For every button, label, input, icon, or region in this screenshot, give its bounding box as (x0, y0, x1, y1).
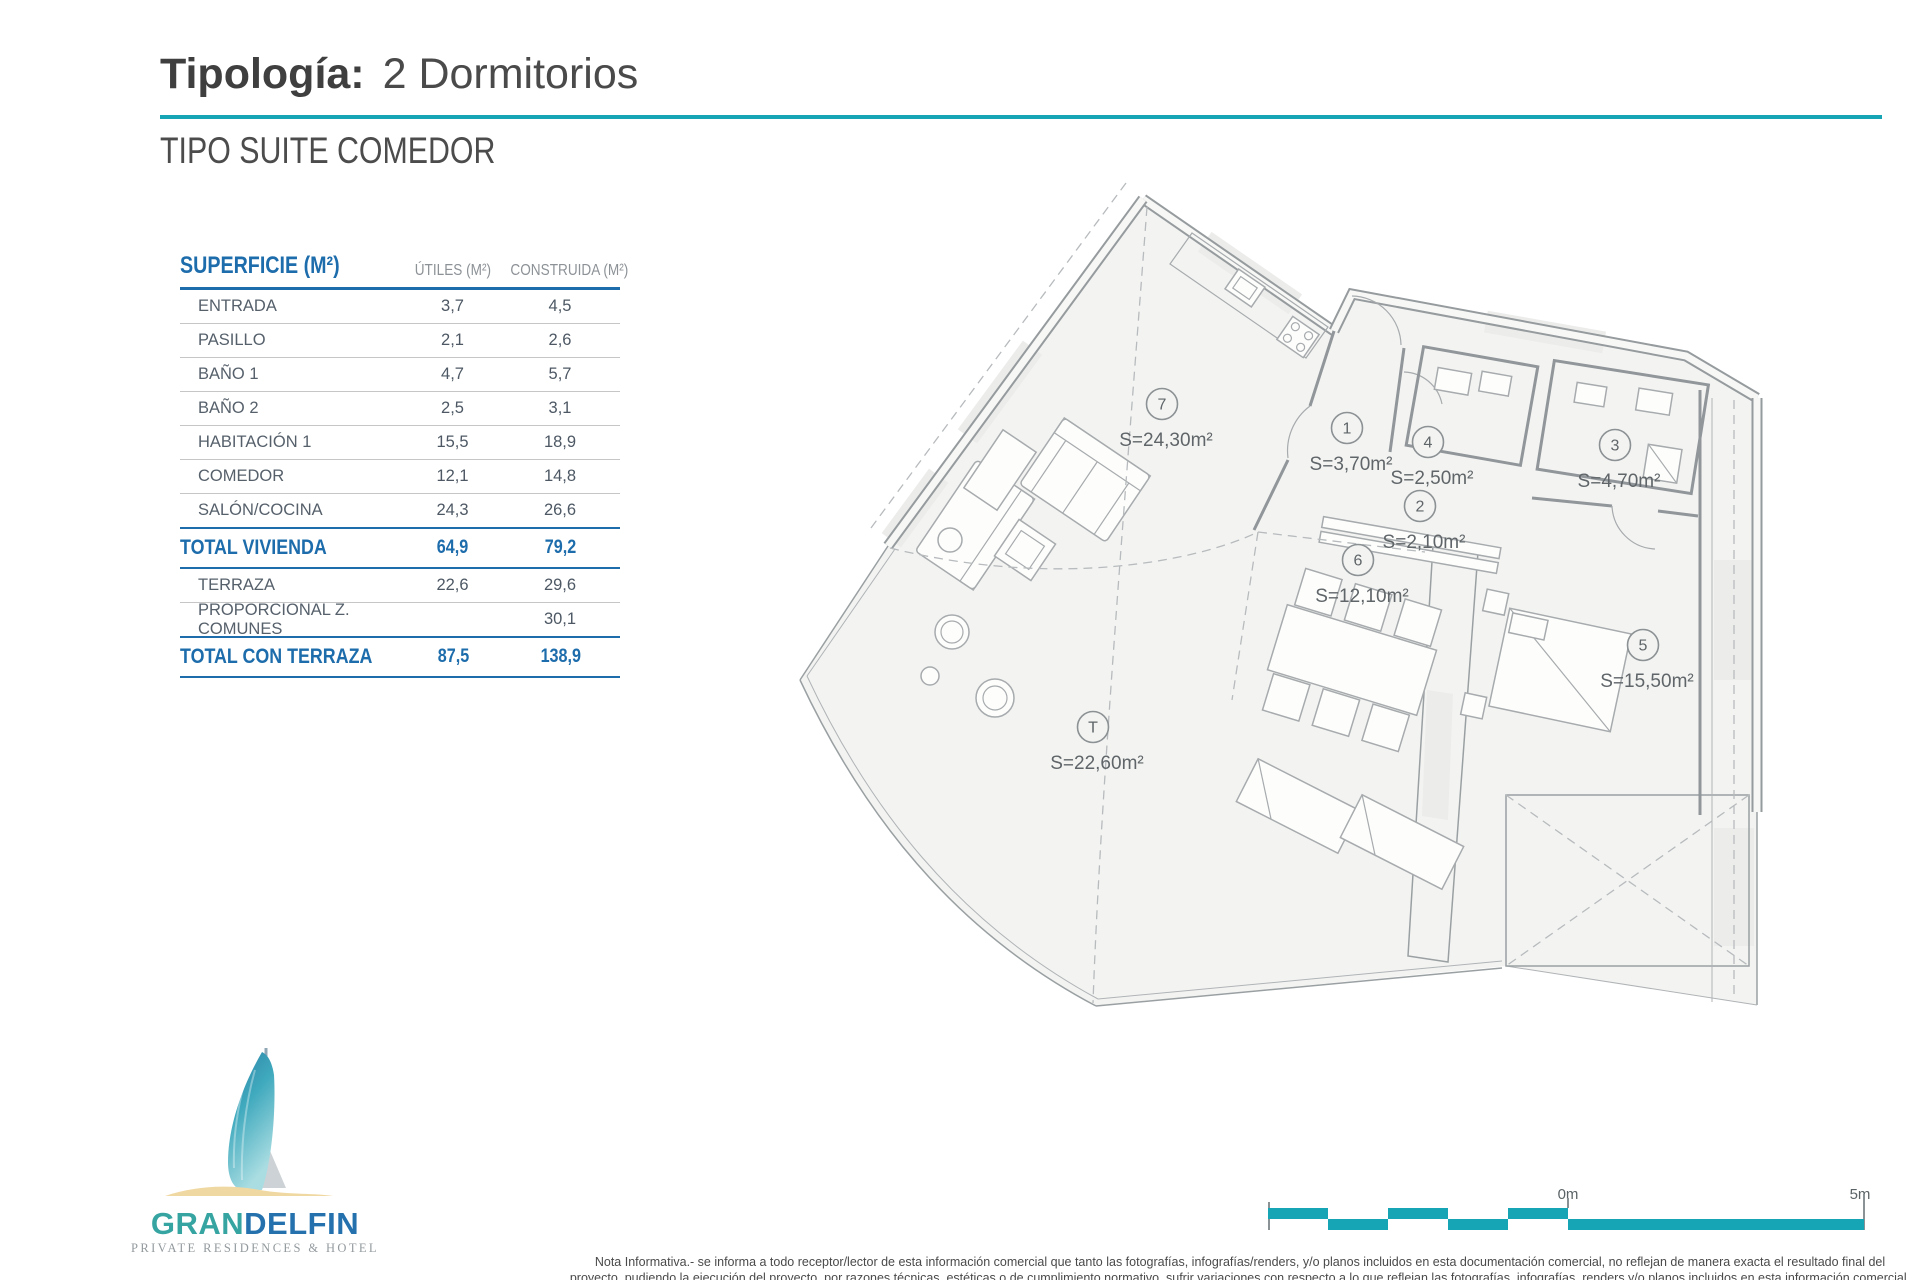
brand-tagline: PRIVATE RESIDENCES & HOTEL (128, 1241, 382, 1256)
desk-stool (938, 528, 962, 552)
scale-tick-zero (1567, 1198, 1569, 1208)
svg-text:S=3,70m²: S=3,70m² (1310, 454, 1393, 475)
scale-bar-segment-2 (1388, 1208, 1448, 1219)
svg-text:S=2,10m²: S=2,10m² (1383, 532, 1466, 553)
brand-name-secondary: DELFIN (244, 1206, 359, 1241)
svg-text:S=2,50m²: S=2,50m² (1391, 468, 1474, 489)
svg-text:S=22,60m²: S=22,60m² (1050, 753, 1143, 774)
floor-plan-hull (800, 199, 1757, 1006)
svg-text:2: 2 (1416, 499, 1425, 516)
svg-text:S=15,50m²: S=15,50m² (1600, 671, 1693, 692)
scale-bar: 0m 5m (1268, 1186, 1864, 1232)
scale-bar-segment-5 (1568, 1219, 1864, 1230)
svg-text:S=4,70m²: S=4,70m² (1578, 471, 1661, 492)
scale-bar-segment-4 (1508, 1208, 1568, 1219)
svg-text:T: T (1088, 720, 1098, 737)
brand-name-primary: GRAN (151, 1206, 244, 1241)
svg-text:S=24,30m²: S=24,30m² (1119, 430, 1212, 451)
scale-bar-segment-0 (1268, 1208, 1328, 1219)
svg-text:5: 5 (1639, 638, 1648, 655)
sail-logo-icon (165, 1040, 345, 1200)
scale-bar-segment-3 (1448, 1219, 1508, 1230)
legal-footnote-line1: Nota Informativa.- se informa a todo rec… (560, 1254, 1920, 1270)
scale-bar-segment-1 (1328, 1219, 1388, 1230)
brand-logo (140, 1040, 370, 1200)
scale-five-label: 5m (1850, 1186, 1871, 1203)
svg-text:6: 6 (1354, 553, 1363, 570)
svg-text:7: 7 (1158, 397, 1167, 414)
legal-footnote-line2: proyecto, pudiendo la ejecución del proy… (560, 1270, 1920, 1280)
svg-text:4: 4 (1424, 435, 1433, 452)
brand-name: GRANDELFIN (140, 1206, 370, 1242)
legal-footnote: Nota Informativa.- se informa a todo rec… (560, 1254, 1920, 1280)
svg-text:3: 3 (1611, 438, 1620, 455)
svg-text:S=12,10m²: S=12,10m² (1315, 586, 1408, 607)
svg-text:1: 1 (1343, 421, 1352, 438)
brochure-page: Tipología: 2 Dormitorios TIPO SUITE COME… (0, 0, 1920, 1280)
